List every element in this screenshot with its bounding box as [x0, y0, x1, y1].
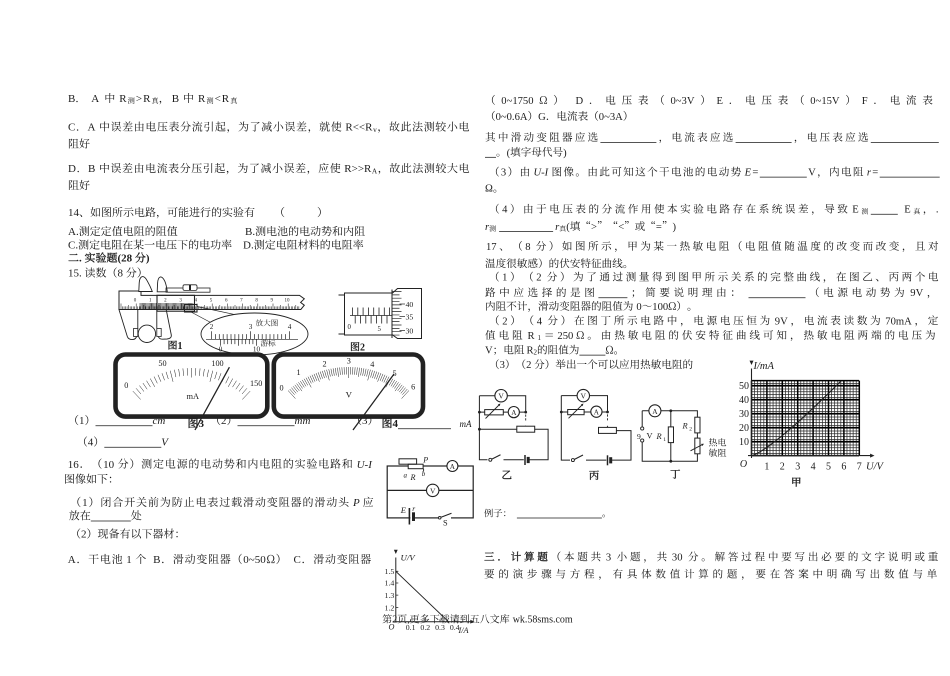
svg-text:E: E: [717, 96, 723, 107]
svg-text:1: 1: [764, 462, 769, 473]
svg-text:O: O: [740, 459, 747, 470]
svg-text:0~3V: 0~3V: [671, 96, 695, 107]
svg-text:=: =: [656, 222, 662, 233]
svg-text:16: 16: [68, 459, 80, 471]
svg-text:1: 1: [663, 437, 666, 443]
svg-text:U/V: U/V: [866, 462, 885, 473]
svg-text:S: S: [443, 519, 448, 528]
svg-text:V: V: [485, 346, 493, 357]
svg-text:A: A: [372, 166, 378, 175]
svg-text:E: E: [400, 505, 407, 515]
svg-text:I/A: I/A: [458, 626, 470, 635]
svg-text:5: 5: [378, 326, 382, 333]
svg-text:): ): [673, 222, 677, 233]
svg-text:A: A: [68, 554, 76, 566]
svg-text:30: 30: [406, 326, 414, 335]
svg-text:2: 2: [210, 323, 214, 331]
svg-text:C: C: [294, 554, 301, 566]
svg-text:B: B: [68, 93, 75, 105]
svg-text:4: 4: [811, 462, 816, 473]
svg-text:15.: 15.: [68, 268, 82, 280]
svg-text:3: 3: [347, 357, 351, 366]
svg-text:40: 40: [406, 300, 414, 309]
svg-text:1.5: 1.5: [385, 567, 395, 576]
svg-text:0: 0: [279, 384, 283, 393]
svg-text:G: G: [538, 112, 546, 123]
svg-text:U-I: U-I: [534, 168, 549, 179]
svg-text:4: 4: [288, 323, 292, 331]
svg-text:wk.58sms.com: wk.58sms.com: [513, 615, 573, 626]
svg-text:V: V: [498, 392, 504, 401]
svg-text:v: v: [373, 125, 377, 134]
svg-text:0: 0: [636, 302, 641, 313]
svg-text:1: 1: [502, 273, 507, 284]
svg-text:D: D: [68, 163, 76, 175]
svg-text:5: 5: [393, 369, 397, 378]
svg-text:0~50: 0~50: [243, 554, 266, 566]
svg-text:8: 8: [525, 242, 530, 253]
svg-text:R: R: [528, 331, 536, 342]
svg-text:9V: 9V: [910, 288, 923, 299]
svg-text:4: 4: [88, 437, 94, 449]
svg-text:r: r: [412, 504, 415, 513]
svg-text:B.: B.: [245, 226, 255, 238]
svg-text:0~1750: 0~1750: [501, 96, 533, 107]
svg-text:2: 2: [360, 342, 365, 353]
svg-text:U-I: U-I: [357, 459, 374, 471]
svg-text:3: 3: [249, 323, 253, 331]
svg-text:R: R: [410, 473, 416, 482]
svg-text:0.1: 0.1: [406, 623, 416, 632]
svg-text:B: B: [88, 163, 95, 175]
svg-text:4: 4: [502, 205, 508, 216]
svg-text:R<<R: R<<R: [345, 122, 373, 134]
svg-text:.: .: [79, 253, 82, 265]
svg-text:1: 1: [297, 368, 301, 377]
svg-text:3: 3: [199, 418, 205, 430]
svg-text:5: 5: [826, 462, 831, 473]
svg-text:10: 10: [739, 437, 749, 448]
svg-text:(: (: [566, 222, 570, 233]
svg-text:0~15V: 0~15V: [810, 96, 840, 107]
svg-text:35: 35: [406, 312, 414, 321]
svg-text:V: V: [647, 432, 653, 441]
svg-text:50: 50: [158, 359, 166, 368]
svg-text:<: <: [215, 93, 221, 105]
svg-text:2: 2: [780, 462, 785, 473]
svg-text:9: 9: [637, 432, 641, 441]
svg-text:P: P: [422, 455, 428, 464]
svg-text:3: 3: [500, 360, 505, 371]
svg-text:150: 150: [250, 379, 262, 388]
svg-text:100: 100: [211, 359, 223, 368]
svg-text:8: 8: [118, 268, 124, 280]
svg-text:V: V: [808, 168, 816, 179]
svg-text:mA: mA: [187, 392, 200, 401]
svg-text:1: 1: [538, 334, 542, 342]
svg-text:P: P: [352, 497, 360, 509]
svg-text:4: 4: [393, 418, 399, 430]
svg-text:b: b: [422, 470, 426, 478]
svg-text:=: =: [872, 168, 878, 179]
svg-text:2: 2: [526, 360, 531, 371]
svg-text:1: 1: [79, 415, 85, 427]
svg-text:30: 30: [739, 409, 749, 420]
svg-text:R: R: [119, 93, 127, 105]
svg-text:17: 17: [486, 242, 497, 253]
svg-text:2: 2: [534, 349, 538, 357]
svg-text:.: .: [936, 205, 939, 216]
svg-text:20: 20: [739, 423, 749, 434]
svg-text:1.3: 1.3: [385, 591, 395, 600]
svg-text:1: 1: [82, 497, 88, 509]
svg-text:30: 30: [672, 553, 683, 564]
svg-text:>: >: [591, 222, 597, 233]
svg-text:4: 4: [537, 316, 543, 327]
svg-text:1.4: 1.4: [385, 579, 395, 588]
svg-text:4: 4: [370, 360, 374, 369]
svg-text:E: E: [852, 205, 858, 216]
svg-text:V: V: [346, 389, 353, 399]
svg-text:E: E: [904, 205, 910, 216]
svg-text:100: 100: [652, 302, 668, 313]
svg-text:A: A: [450, 463, 456, 471]
svg-text:R: R: [222, 93, 230, 105]
svg-text:R: R: [143, 93, 151, 105]
svg-text:V: V: [430, 486, 436, 495]
svg-text:=: =: [752, 168, 758, 179]
svg-text:<: <: [618, 222, 624, 233]
svg-text:A.: A.: [68, 226, 79, 238]
svg-text:D: D: [576, 96, 584, 107]
svg-text:0.2: 0.2: [420, 623, 430, 632]
svg-text:250: 250: [557, 331, 573, 342]
svg-text:): ): [563, 148, 567, 159]
svg-text:10: 10: [103, 459, 115, 471]
svg-text:A: A: [91, 93, 99, 105]
svg-text:3: 3: [606, 553, 611, 564]
svg-text:1: 1: [178, 341, 183, 352]
svg-text:B: B: [153, 554, 160, 566]
svg-text:U/V: U/V: [401, 553, 417, 563]
svg-text:R: R: [656, 432, 662, 441]
svg-text:mA: mA: [460, 419, 472, 429]
svg-text:2: 2: [536, 273, 541, 284]
svg-text:2: 2: [81, 529, 87, 541]
svg-text:C.: C.: [68, 240, 78, 252]
svg-text:50: 50: [739, 381, 749, 392]
svg-text:C: C: [68, 122, 75, 134]
svg-text:9V: 9V: [775, 316, 788, 327]
svg-text:0~3A: 0~3A: [599, 112, 623, 123]
svg-text:14: 14: [68, 207, 80, 219]
svg-text:F: F: [862, 96, 868, 107]
svg-text:E: E: [744, 168, 752, 179]
svg-text:2: 2: [502, 316, 507, 327]
svg-text:R: R: [198, 93, 206, 105]
svg-text:Ω: Ω: [485, 184, 493, 195]
svg-text:): ): [146, 253, 150, 265]
svg-text:>: >: [136, 93, 142, 105]
svg-text:6: 6: [411, 383, 415, 392]
svg-text:A: A: [594, 409, 600, 417]
svg-text:A: A: [511, 409, 517, 417]
svg-text:a: a: [404, 472, 408, 480]
svg-text:A: A: [652, 407, 658, 416]
svg-text:A: A: [88, 122, 96, 134]
svg-text:I/mA: I/mA: [753, 361, 775, 372]
svg-text:R>>R: R>>R: [344, 163, 372, 175]
svg-text:D.: D.: [243, 240, 254, 252]
svg-text:10: 10: [285, 299, 291, 304]
svg-text:3: 3: [795, 462, 800, 473]
svg-text:0: 0: [124, 381, 128, 390]
svg-text:7: 7: [857, 462, 862, 473]
svg-text:O: O: [389, 623, 395, 632]
svg-text:6: 6: [841, 462, 846, 473]
svg-text:V: V: [581, 392, 587, 401]
svg-text:1: 1: [126, 554, 132, 566]
svg-text:0~0.6A: 0~0.6A: [496, 112, 528, 123]
svg-text:0: 0: [348, 324, 352, 331]
svg-text:3: 3: [501, 168, 506, 179]
svg-text:70mA: 70mA: [885, 316, 912, 327]
svg-text:1.2: 1.2: [385, 603, 395, 612]
svg-text:40: 40: [739, 395, 749, 406]
svg-text:B: B: [172, 93, 179, 105]
svg-text:2: 2: [689, 427, 692, 433]
svg-text:2: 2: [323, 360, 327, 369]
svg-text:R: R: [682, 422, 688, 431]
svg-text:(28: (28: [118, 253, 133, 265]
svg-text:0.3: 0.3: [435, 623, 445, 632]
svg-text:(: (: [507, 148, 511, 159]
